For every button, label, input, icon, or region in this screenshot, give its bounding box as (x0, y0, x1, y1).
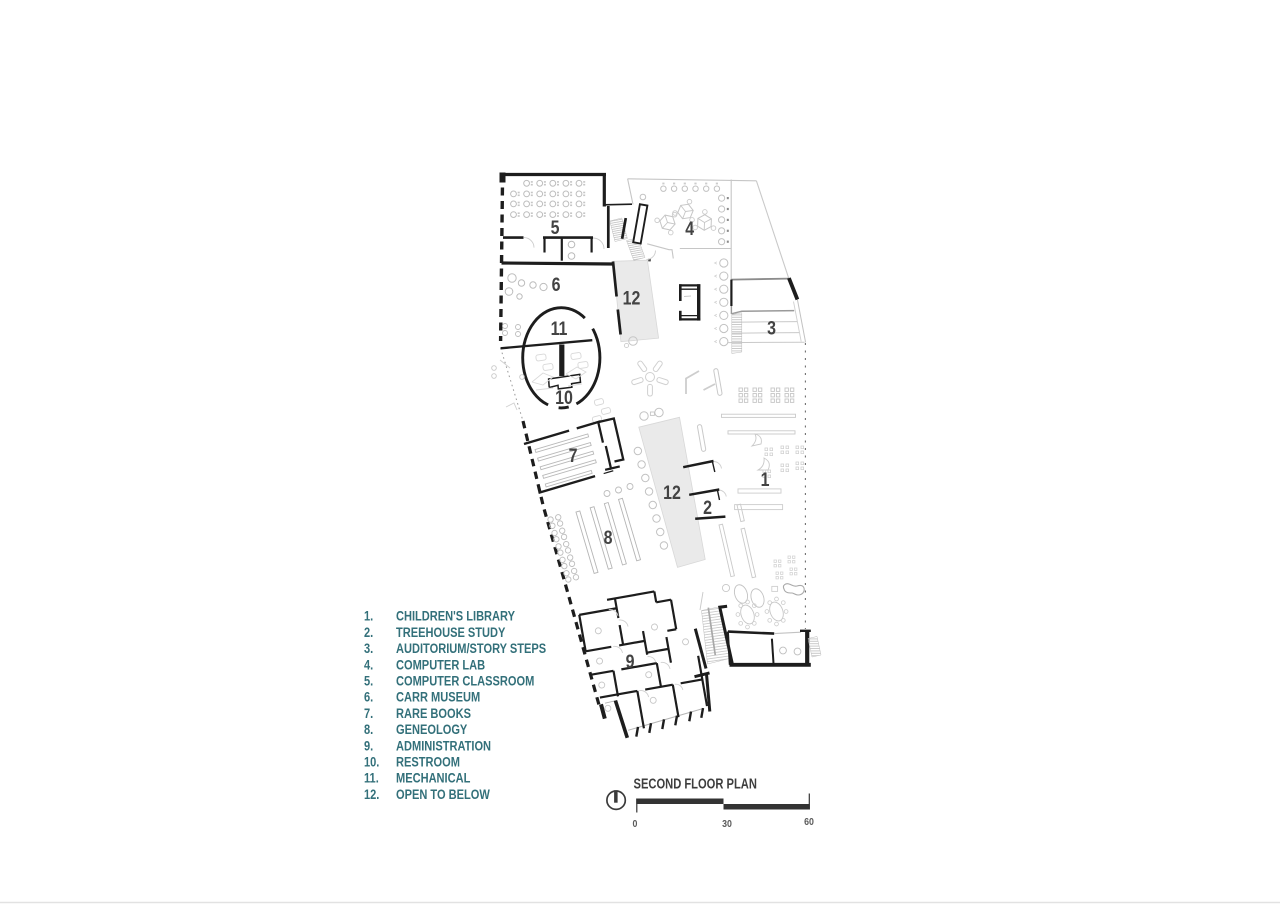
svg-text:4.: 4. (364, 656, 373, 673)
svg-text:11.: 11. (364, 769, 379, 786)
svg-text:2: 2 (703, 497, 712, 519)
svg-text:12.: 12. (364, 786, 379, 803)
svg-text:30: 30 (722, 818, 732, 830)
svg-text:10: 10 (555, 387, 573, 409)
svg-text:7.: 7. (364, 705, 373, 722)
svg-text:8.: 8. (364, 721, 373, 738)
svg-text:AUDITORIUM/STORY STEPS: AUDITORIUM/STORY STEPS (396, 640, 546, 657)
svg-text:1.: 1. (364, 607, 373, 624)
svg-text:60: 60 (804, 816, 814, 828)
svg-text:2.: 2. (364, 624, 373, 641)
svg-text:ADMINISTRATION: ADMINISTRATION (396, 737, 491, 754)
svg-text:6: 6 (552, 274, 561, 296)
svg-text:12: 12 (663, 482, 681, 504)
svg-text:12: 12 (623, 287, 641, 309)
svg-text:COMPUTER CLASSROOM: COMPUTER CLASSROOM (396, 672, 534, 689)
svg-text:3: 3 (767, 317, 776, 339)
svg-text:6.: 6. (364, 688, 373, 705)
svg-text:SECOND FLOOR PLAN: SECOND FLOOR PLAN (634, 775, 757, 792)
svg-text:11: 11 (551, 318, 568, 340)
svg-text:5: 5 (551, 217, 560, 239)
svg-text:MECHANICAL: MECHANICAL (396, 769, 471, 786)
svg-text:7: 7 (569, 445, 578, 467)
svg-text:CHILDREN'S LIBRARY: CHILDREN'S LIBRARY (396, 607, 515, 624)
svg-text:1: 1 (761, 469, 770, 491)
svg-text:4: 4 (685, 218, 694, 240)
svg-text:RARE BOOKS: RARE BOOKS (396, 705, 471, 722)
svg-text:8: 8 (604, 527, 613, 549)
svg-text:TREEHOUSE STUDY: TREEHOUSE STUDY (396, 624, 506, 641)
svg-text:0: 0 (633, 818, 638, 830)
svg-text:CARR MUSEUM: CARR MUSEUM (396, 688, 480, 705)
svg-text:RESTROOM: RESTROOM (396, 753, 460, 770)
svg-text:5.: 5. (364, 672, 373, 689)
svg-text:9: 9 (626, 651, 635, 673)
svg-text:GENEOLOGY: GENEOLOGY (396, 721, 468, 738)
svg-text:3.: 3. (364, 640, 373, 657)
svg-text:10.: 10. (364, 753, 379, 770)
svg-text:9.: 9. (364, 737, 373, 754)
svg-text:OPEN TO BELOW: OPEN TO BELOW (396, 786, 490, 803)
svg-text:COMPUTER LAB: COMPUTER LAB (396, 656, 485, 673)
